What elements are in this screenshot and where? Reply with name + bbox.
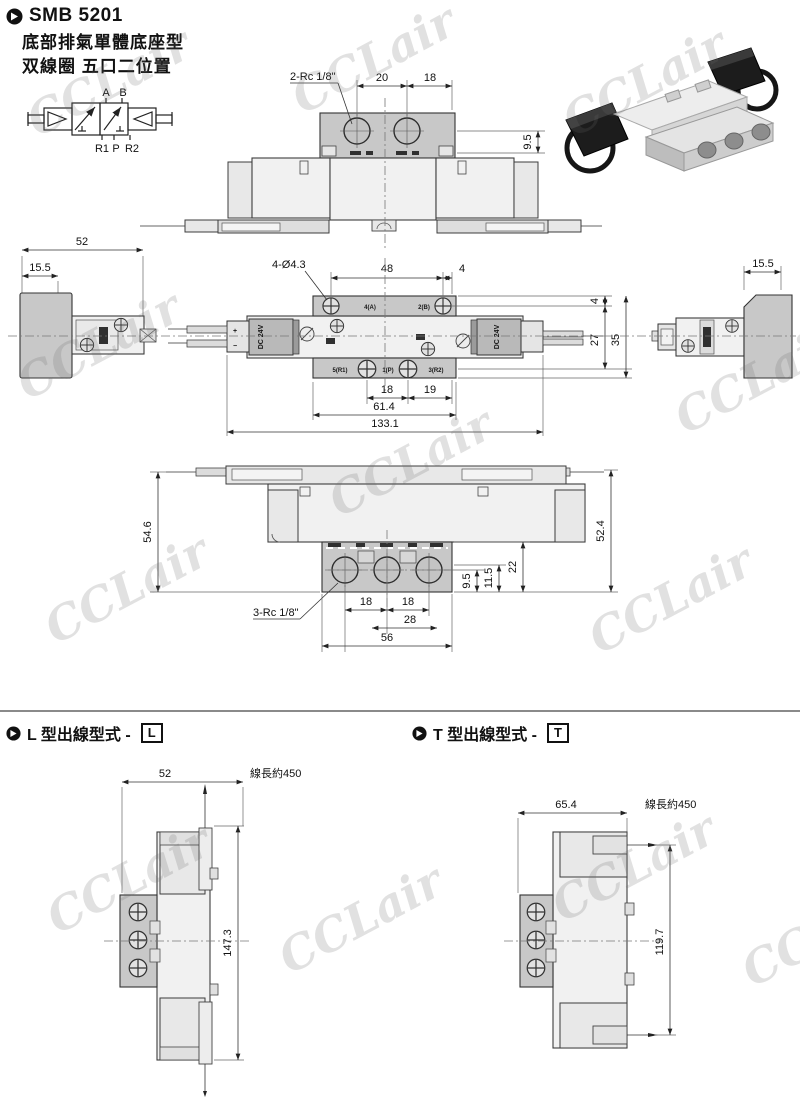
dim-19: 19 xyxy=(424,384,436,396)
dim-18-a: 18 xyxy=(360,596,372,608)
left-end-view: 52 15.5 xyxy=(20,236,156,378)
bullet-play-icon xyxy=(6,726,21,741)
dim-4-right: 4 xyxy=(589,298,601,304)
t-wire-label: 線長約450 xyxy=(645,797,696,811)
l-dim-52: 52 xyxy=(159,768,171,780)
holes-label: 4-Ø4.3 xyxy=(272,259,306,271)
section-header-l-type: L 型出線型式 - L xyxy=(6,721,163,745)
product-photo xyxy=(566,48,776,171)
section-divider xyxy=(0,710,800,712)
dim-18-front: 18 xyxy=(381,384,393,396)
l-type-heading: L 型出線型式 - xyxy=(27,721,131,745)
center-front-view: + − DC 24V DC 24V 4(A) 2(B) 5(R1) 1(P) 3… xyxy=(168,259,632,436)
port-mark-5r1: 5(R1) xyxy=(332,368,347,374)
subtitle-line2: 双線圈 五口二位置 xyxy=(22,52,172,77)
dim-48: 48 xyxy=(381,263,393,275)
dim-9-5-bottom: 9.5 xyxy=(461,573,473,588)
symbol-port-p: P xyxy=(112,143,119,155)
bottom-elevation-view: 54.6 52.4 22 11.5 9.5 3-Rc 1/8" 18 18 28… xyxy=(142,466,618,652)
dim-9-5: 9.5 xyxy=(522,134,534,149)
dim-56: 56 xyxy=(381,632,393,644)
dim-18-b: 18 xyxy=(402,596,414,608)
page-title-row: SMB 5201 xyxy=(6,5,123,27)
l-type-view: 52 線長約450 147.3 xyxy=(104,766,301,1097)
dim-52-4: 52.4 xyxy=(595,520,607,541)
dim-28: 28 xyxy=(404,614,416,626)
dim-18: 18 xyxy=(424,72,436,84)
coil-voltage-left: DC 24V xyxy=(258,324,265,349)
dim-54-6: 54.6 xyxy=(142,521,154,542)
t-dim-65-4: 65.4 xyxy=(555,799,576,811)
dim-22: 22 xyxy=(507,561,519,573)
coil-minus-mark: − xyxy=(233,343,237,350)
dim-11-5: 11.5 xyxy=(483,568,495,589)
top-view: 20 18 2-Rc 1/8" 9.5 xyxy=(290,71,545,158)
t-type-view: 65.4 線長約450 119.7 xyxy=(504,797,696,1048)
port-mark-1p: 1(P) xyxy=(382,368,393,374)
dim-15-5-right: 15.5 xyxy=(752,258,773,270)
symbol-port-r1: R1 xyxy=(95,143,109,155)
port-mark-2b: 2(B) xyxy=(418,305,430,311)
t-type-code-box: T xyxy=(547,723,569,743)
dim-52: 52 xyxy=(76,236,88,248)
l-dim-147-3: 147.3 xyxy=(222,929,234,957)
section-header-t-type: T 型出線型式 - T xyxy=(412,721,569,745)
dim-4-top: 4 xyxy=(459,263,465,275)
dim-133-1: 133.1 xyxy=(371,418,399,430)
front-elevation-view xyxy=(140,158,602,233)
dim-20: 20 xyxy=(376,72,388,84)
t-type-heading: T 型出線型式 - xyxy=(433,721,537,745)
page-title: SMB 5201 xyxy=(29,5,123,27)
right-end-view: 15.5 xyxy=(652,258,792,378)
technical-drawing-canvas: .ext{stroke:#666;stroke-width:.7;fill:no… xyxy=(0,0,800,1097)
bullet-play-icon xyxy=(6,8,23,25)
thread-label-2rc: 2-Rc 1/8" xyxy=(290,71,336,83)
t-dim-119-7: 119.7 xyxy=(654,929,666,956)
port-mark-3r2: 3(R2) xyxy=(428,368,443,374)
port-mark-4a: 4(A) xyxy=(364,305,376,311)
symbol-port-b: B xyxy=(119,87,126,99)
dim-61-4: 61.4 xyxy=(373,401,394,413)
l-type-code-box: L xyxy=(141,723,163,743)
subtitle-line1: 底部排氣單體底座型 xyxy=(22,28,184,53)
symbol-port-a: A xyxy=(102,87,110,99)
bullet-play-icon xyxy=(412,726,427,741)
coil-plus-mark: + xyxy=(233,328,237,335)
thread-label-3rc: 3-Rc 1/8" xyxy=(253,607,299,619)
coil-voltage-right: DC 24V xyxy=(494,324,501,349)
symbol-port-r2: R2 xyxy=(125,143,139,155)
pneumatic-symbol: A B R1 P R2 xyxy=(28,87,172,155)
dim-15-5-left: 15.5 xyxy=(29,262,50,274)
l-wire-label: 線長約450 xyxy=(250,766,301,780)
